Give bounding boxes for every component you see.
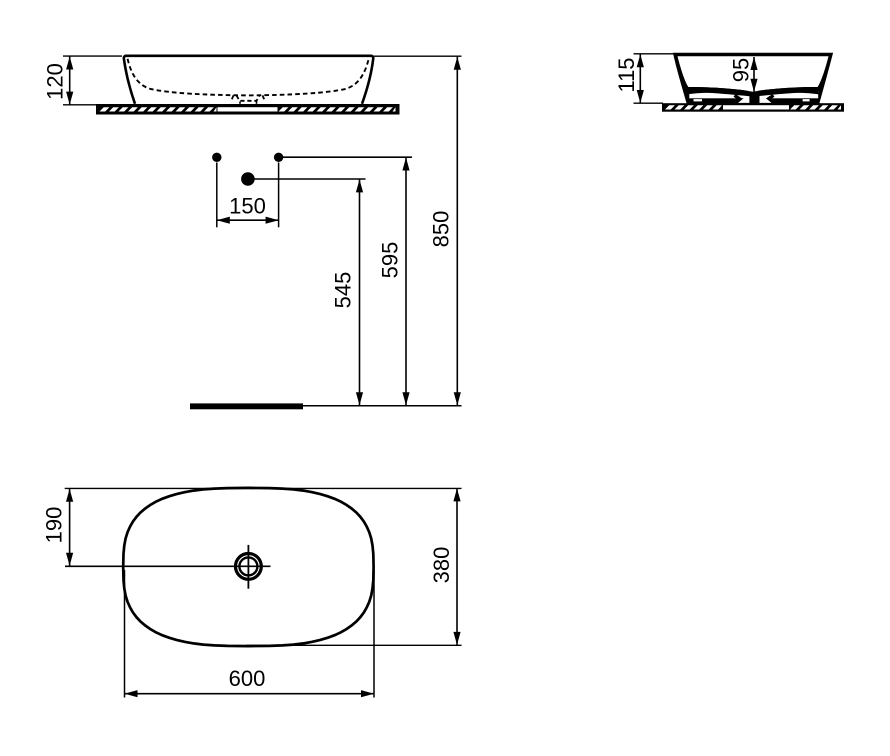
svg-text:115: 115	[614, 57, 639, 92]
svg-text:545: 545	[331, 272, 356, 309]
svg-text:120: 120	[42, 63, 67, 100]
svg-text:190: 190	[42, 507, 67, 544]
svg-text:595: 595	[378, 242, 403, 279]
svg-text:850: 850	[429, 211, 454, 248]
svg-text:150: 150	[229, 194, 266, 219]
svg-text:95: 95	[729, 58, 754, 82]
svg-text:600: 600	[229, 666, 266, 691]
svg-text:380: 380	[429, 547, 454, 584]
